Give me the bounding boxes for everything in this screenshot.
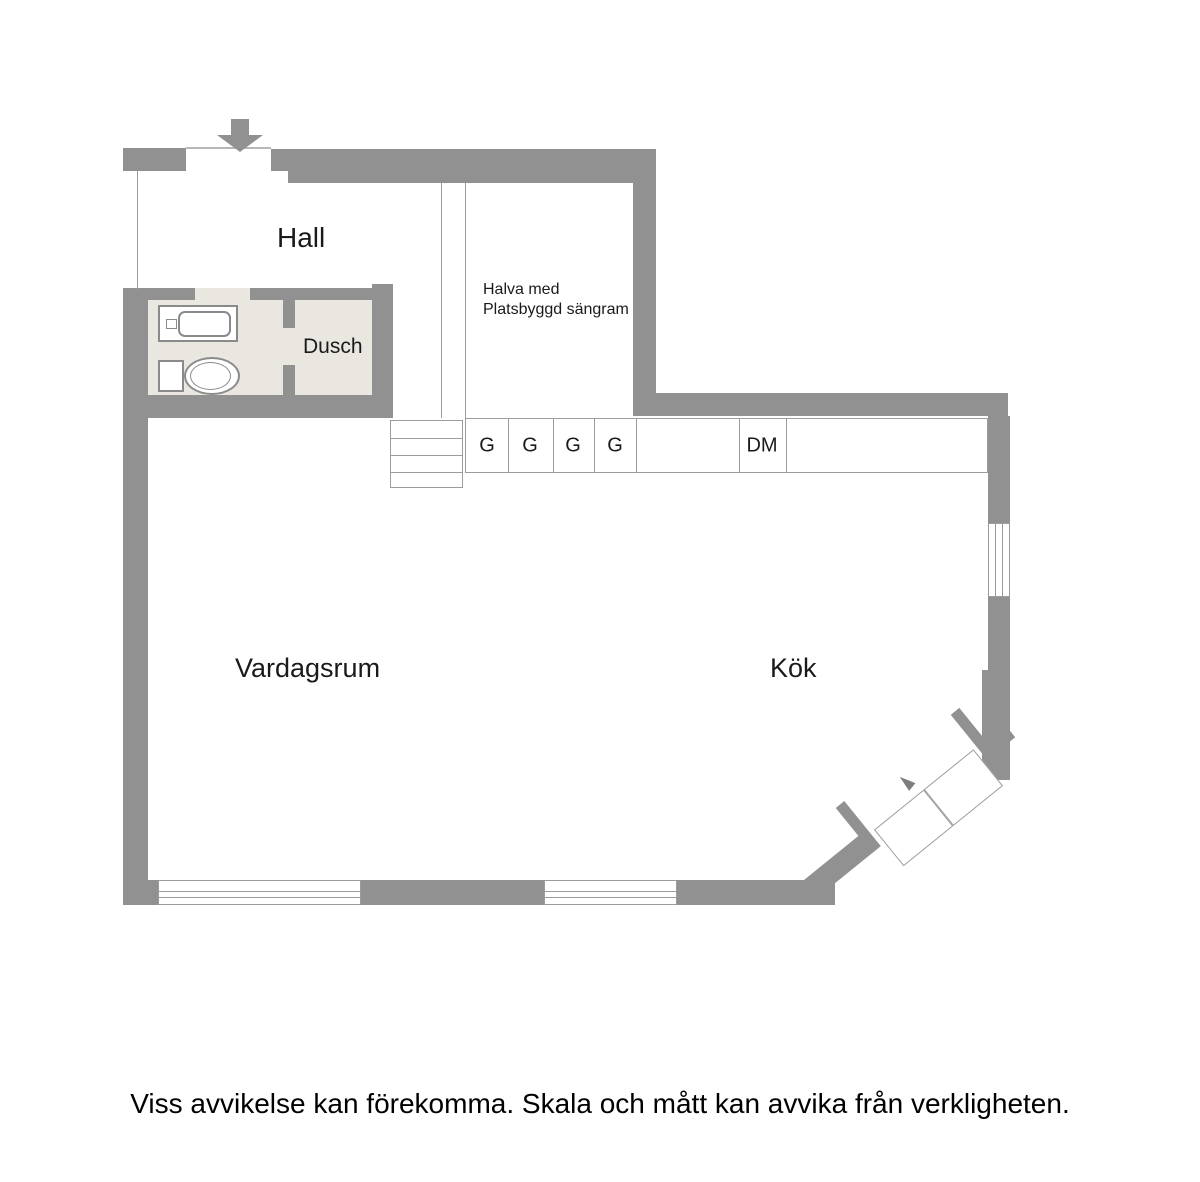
toilet-bowl-inner bbox=[190, 362, 231, 390]
hall-label: Hall bbox=[277, 222, 325, 254]
wall-right-mid bbox=[988, 597, 1010, 670]
sink-tap bbox=[166, 319, 177, 329]
shower-label: Dusch bbox=[303, 335, 363, 359]
alcove-note-line1: Halva med bbox=[483, 280, 629, 300]
cabinet-label: G bbox=[479, 434, 495, 457]
kitchen-counter-row: G G G G DM bbox=[465, 418, 988, 473]
window-pane-line bbox=[995, 524, 996, 596]
window-pane-line bbox=[159, 897, 360, 898]
cabinet-label: G bbox=[607, 434, 623, 457]
window-pane-line bbox=[545, 891, 676, 892]
cabinet-label: G bbox=[522, 434, 538, 457]
door-swing-arrow-icon bbox=[897, 773, 916, 791]
window-symbol-right bbox=[988, 523, 1010, 597]
cabinet-divider bbox=[636, 419, 637, 472]
cabinet-label: G bbox=[565, 434, 581, 457]
stairs-icon bbox=[390, 420, 463, 488]
window-pane-line bbox=[1002, 524, 1003, 596]
wall-left bbox=[123, 288, 148, 905]
entrance-arrow-icon bbox=[231, 119, 249, 136]
window-symbol-bottom-2 bbox=[544, 880, 677, 905]
stair-tread bbox=[391, 472, 462, 473]
hall-left-boundary-line bbox=[137, 171, 138, 290]
alcove-edge-line-inner bbox=[465, 183, 466, 418]
bathroom-wall-bottom bbox=[123, 395, 393, 418]
alcove-note: Halva med Platsbyggd sängram bbox=[483, 280, 629, 320]
cabinet-divider bbox=[786, 419, 787, 472]
bathroom-wall-top-a bbox=[136, 288, 195, 300]
living-room-label: Vardagsrum bbox=[235, 653, 380, 684]
window-pane-line bbox=[545, 897, 676, 898]
kitchen-label: Kök bbox=[770, 653, 817, 684]
dishwasher-label: DM bbox=[746, 434, 777, 457]
wall-top bbox=[271, 149, 656, 183]
cabinet-divider bbox=[739, 419, 740, 472]
stair-tread bbox=[391, 455, 462, 456]
window-symbol-bottom-1 bbox=[158, 880, 361, 905]
floor-plan: G G G G DM Hall Dusch Vardagsrum Kök Hal… bbox=[0, 0, 1200, 1182]
wall-bottom-b bbox=[361, 880, 544, 905]
stair-tread bbox=[391, 438, 462, 439]
alcove-note-line2: Platsbyggd sängram bbox=[483, 300, 629, 320]
alcove-edge-line-outer bbox=[441, 183, 442, 418]
bathroom-wall-top-c bbox=[295, 288, 372, 300]
wall-right-upper bbox=[988, 416, 1010, 523]
disclaimer-text: Viss avvikelse kan förekomma. Skala och … bbox=[0, 1088, 1200, 1120]
wall-bottom-a bbox=[123, 880, 158, 905]
bathroom-wall-top-b bbox=[250, 288, 283, 300]
cabinet-divider bbox=[553, 419, 554, 472]
wall-kitchen-top bbox=[656, 393, 1008, 416]
wall-entrance-left-block bbox=[123, 148, 186, 171]
sink-basin bbox=[178, 311, 231, 337]
cabinet-divider bbox=[594, 419, 595, 472]
wall-top-notch bbox=[271, 171, 288, 183]
bathroom-partition-lower bbox=[283, 365, 295, 395]
entrance-arrow-head bbox=[217, 135, 263, 152]
cabinet-divider bbox=[508, 419, 509, 472]
bathroom-partition-upper bbox=[283, 288, 295, 328]
toilet-icon bbox=[158, 360, 184, 392]
window-pane-line bbox=[159, 891, 360, 892]
wall-alcove-right bbox=[633, 149, 656, 416]
